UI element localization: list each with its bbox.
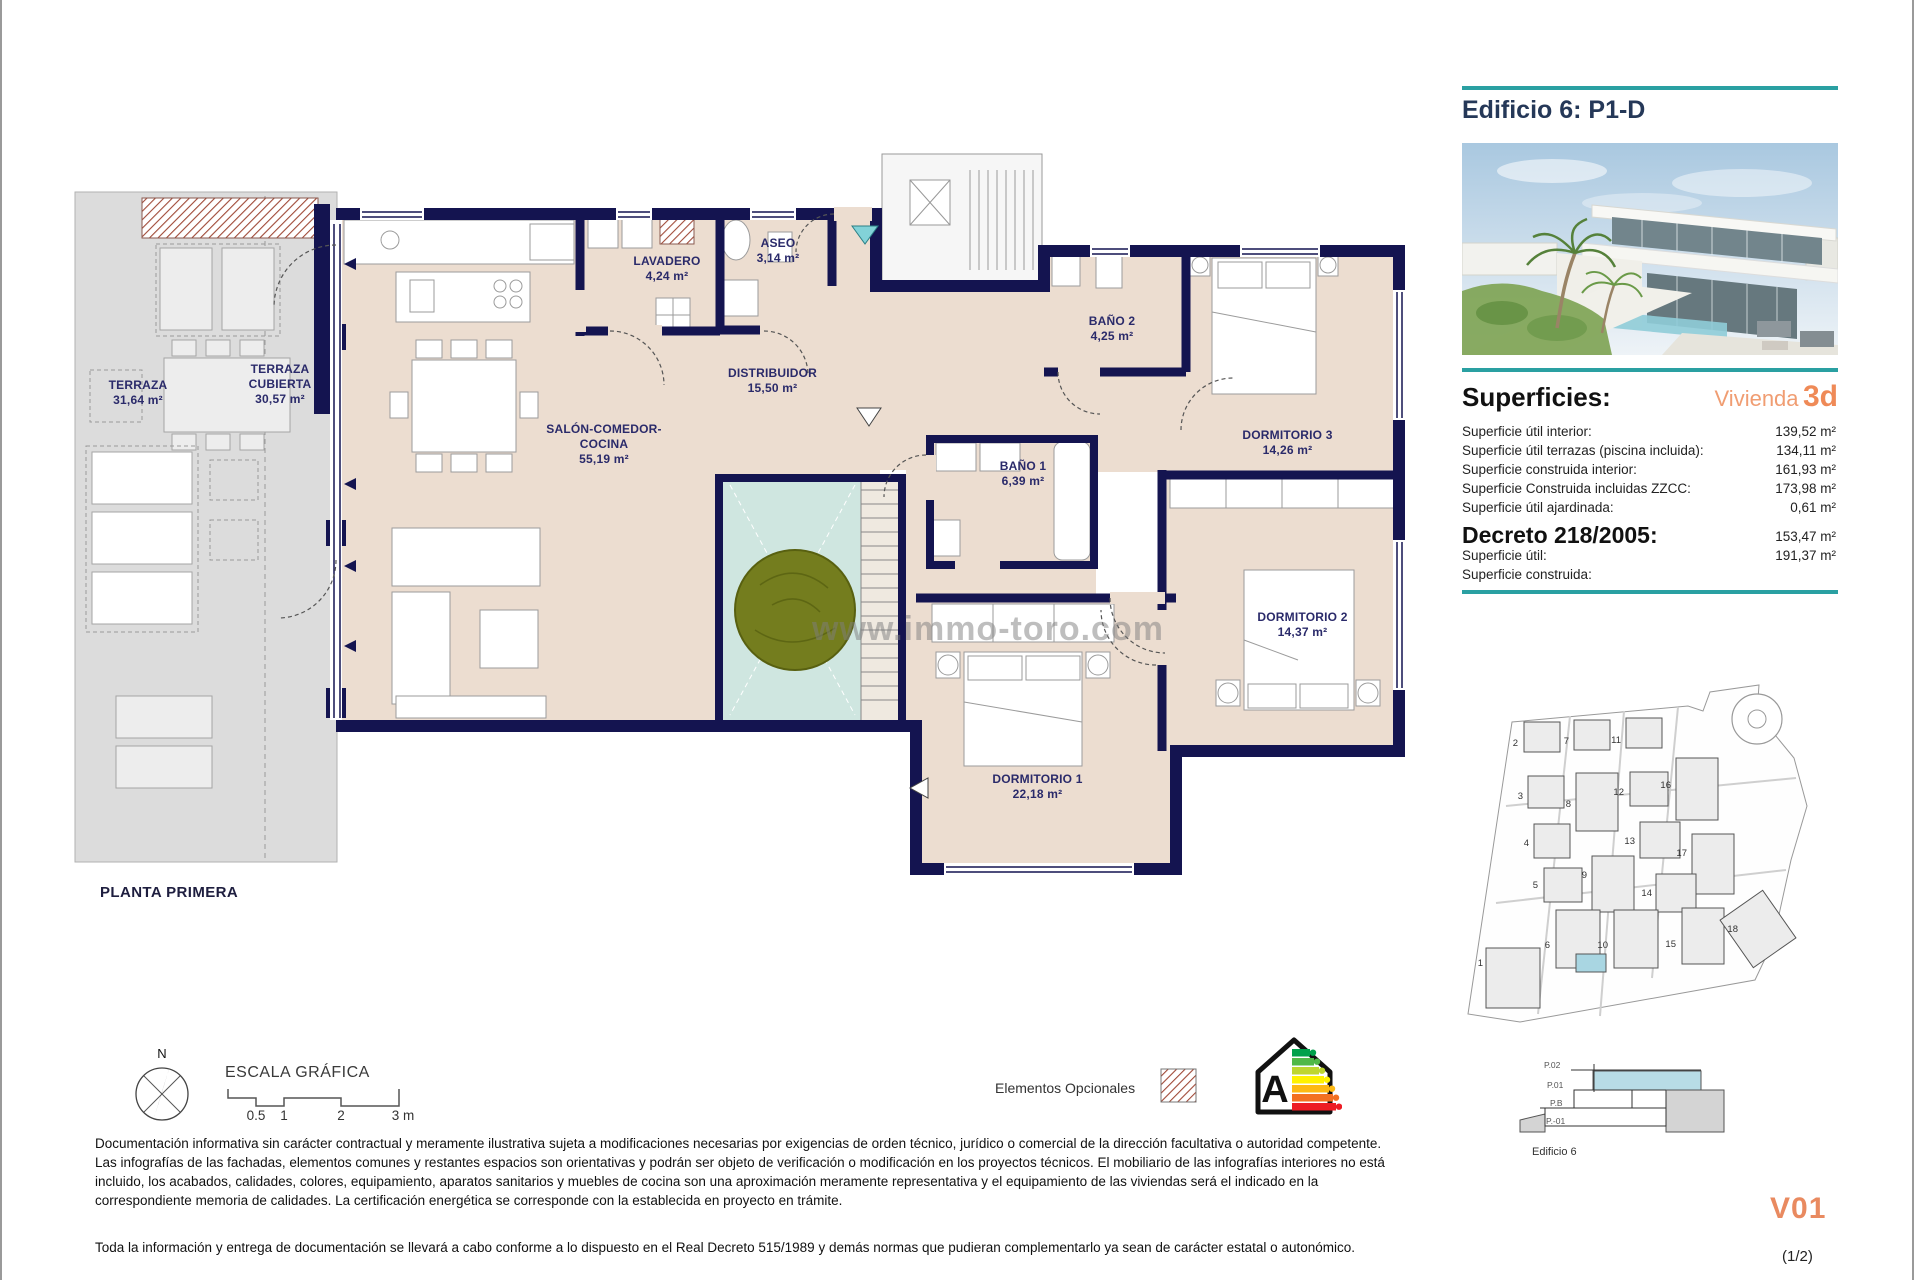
north-label: N — [157, 1046, 166, 1061]
svg-text:P.02: P.02 — [1544, 1060, 1561, 1070]
svg-text:2: 2 — [1513, 738, 1518, 749]
room-name: TERRAZA — [88, 378, 188, 393]
room-area: 55,19 m² — [540, 452, 668, 467]
room-area: 30,57 m² — [234, 392, 326, 407]
svg-text:18: 18 — [1727, 924, 1738, 935]
room-label-dormitorio3: DORMITORIO 3 14,26 m² — [1225, 428, 1350, 458]
room-name: DORMITORIO 3 — [1225, 428, 1350, 443]
optional-elements-label: Elementos Opcionales — [995, 1080, 1135, 1096]
elevation-caption: Edificio 6 — [1532, 1146, 1577, 1158]
superficie-label: Superficie útil: — [1462, 548, 1547, 563]
scale-tick: 0.5 — [247, 1108, 266, 1123]
superficies-bottom-rule — [1462, 590, 1838, 594]
disclaimer-paragraph-1: Documentación informativa sin carácter c… — [95, 1134, 1393, 1211]
svg-text:7: 7 — [1564, 736, 1569, 747]
superficie-label: Superficie útil ajardinada: — [1462, 500, 1614, 515]
room-label-distribuidor: DISTRIBUIDOR 15,50 m² — [705, 366, 840, 396]
scale-tick: 3 m — [392, 1108, 415, 1123]
optional-pergola-hatch — [142, 198, 318, 238]
page-number: (1/2) — [1782, 1248, 1813, 1265]
svg-text:6: 6 — [1545, 940, 1550, 951]
room-area: 31,64 m² — [88, 393, 188, 408]
scale-title: ESCALA GRÁFICA — [225, 1064, 370, 1082]
elevation-key-diagram: P.02 P.01 P.B P.-01 Edificio 6 — [1516, 1052, 1806, 1164]
svg-text:11: 11 — [1611, 735, 1621, 746]
room-name: DISTRIBUIDOR — [705, 366, 840, 381]
room-area: 4,25 m² — [1072, 329, 1152, 344]
room-area: 14,26 m² — [1225, 443, 1350, 458]
energy-letter: A — [1261, 1069, 1288, 1111]
common-lobby — [882, 154, 1042, 282]
room-label-lavadero: LAVADERO 4,24 m² — [612, 254, 722, 284]
vivienda-tag: Vivienda 3d — [1462, 380, 1838, 414]
terrace-zone — [75, 192, 337, 862]
compass-icon: N — [125, 1042, 200, 1127]
energy-rating-icon: A — [1246, 1028, 1342, 1124]
disclaimer-paragraph-2: Toda la información y entrega de documen… — [95, 1238, 1393, 1257]
room-label-bano1: BAÑO 1 6,39 m² — [982, 459, 1064, 489]
superficie-value: 134,11 m² — [1776, 443, 1836, 458]
room-name: TERRAZA CUBIERTA — [234, 362, 326, 392]
site-plan-map: 1 2 3 4 5 6 7 8 9 10 11 12 13 14 15 16 1… — [1456, 678, 1841, 1030]
decreto-title: Decreto 218/2005: — [1462, 522, 1658, 549]
superficie-value: 161,93 m² — [1775, 462, 1836, 477]
sheet-right-border — [1912, 0, 1914, 1280]
version-label: V01 — [1770, 1192, 1826, 1226]
optional-elements-swatch — [1160, 1068, 1198, 1104]
svg-text:14: 14 — [1641, 888, 1652, 899]
room-label-dormitorio1: DORMITORIO 1 22,18 m² — [975, 772, 1100, 802]
superficie-label: Superficie útil interior: — [1462, 424, 1592, 439]
room-label-terraza: TERRAZA 31,64 m² — [88, 378, 188, 408]
room-label-terraza-cubierta: TERRAZA CUBIERTA 30,57 m² — [234, 362, 326, 407]
room-name: SALÓN-COMEDOR-COCINA — [540, 422, 668, 452]
room-name: DORMITORIO 1 — [975, 772, 1100, 787]
superficie-value: 173,98 m² — [1775, 481, 1836, 496]
svg-text:P.-01: P.-01 — [1546, 1116, 1565, 1126]
watermark: www.immo-toro.com — [812, 610, 1164, 649]
sheet-left-border — [0, 0, 2, 1280]
superficie-label: Superficie útil terrazas (piscina inclui… — [1462, 443, 1704, 458]
elevation-level-labels: P.02 P.01 P.B P.-01 — [1544, 1060, 1565, 1126]
room-name: BAÑO 1 — [982, 459, 1064, 474]
superficie-value: 139,52 m² — [1775, 424, 1836, 439]
room-label-dormitorio2: DORMITORIO 2 14,37 m² — [1240, 610, 1365, 640]
svg-text:16: 16 — [1660, 780, 1671, 791]
room-name: BAÑO 2 — [1072, 314, 1152, 329]
highlighted-floor — [1593, 1071, 1701, 1090]
superficies-top-rule — [1462, 368, 1838, 372]
room-name: ASEO — [742, 236, 814, 251]
highlighted-unit — [1576, 954, 1606, 972]
room-name: DORMITORIO 2 — [1240, 610, 1365, 625]
svg-text:17: 17 — [1676, 848, 1687, 859]
room-area: 22,18 m² — [975, 787, 1100, 802]
building-render-image — [1462, 143, 1838, 355]
scale-tick: 2 — [337, 1108, 345, 1123]
svg-text:4: 4 — [1524, 838, 1529, 849]
svg-text:15: 15 — [1665, 939, 1676, 950]
superficie-label: Superficie Construida incluidas ZZCC: — [1462, 481, 1691, 496]
room-label-aseo: ASEO 3,14 m² — [742, 236, 814, 266]
plan-sheet: TERRAZA 31,64 m² TERRAZA CUBIERTA 30,57 … — [0, 0, 1920, 1280]
vivienda-code: 3d — [1803, 380, 1838, 413]
svg-text:1: 1 — [1478, 958, 1483, 969]
superficie-label: Superficie construida interior: — [1462, 462, 1637, 477]
svg-text:9: 9 — [1582, 870, 1587, 881]
svg-text:5: 5 — [1533, 880, 1538, 891]
svg-text:P.B: P.B — [1550, 1098, 1563, 1108]
svg-text:P.01: P.01 — [1547, 1080, 1564, 1090]
scale-tick: 1 — [280, 1108, 288, 1123]
page-title: Edificio 6: P1-D — [1462, 96, 1645, 125]
graphic-scale-bar: 0.5 1 2 3 m — [225, 1086, 425, 1124]
staircase — [861, 476, 902, 722]
svg-text:13: 13 — [1624, 836, 1635, 847]
room-name: LAVADERO — [612, 254, 722, 269]
vivienda-label: Vivienda — [1715, 386, 1799, 411]
floor-title: PLANTA PRIMERA — [100, 884, 238, 901]
room-label-salon: SALÓN-COMEDOR-COCINA 55,19 m² — [540, 422, 668, 467]
svg-text:12: 12 — [1613, 787, 1624, 798]
svg-text:3: 3 — [1518, 791, 1523, 802]
room-label-bano2: BAÑO 2 4,25 m² — [1072, 314, 1152, 344]
superficie-label: Superficie construida: — [1462, 567, 1592, 582]
superficie-value: 0,61 m² — [1790, 500, 1836, 515]
room-area: 3,14 m² — [742, 251, 814, 266]
room-area: 15,50 m² — [705, 381, 840, 396]
svg-text:8: 8 — [1566, 799, 1571, 810]
superficie-value: 153,47 m² — [1775, 529, 1836, 544]
svg-text:10: 10 — [1597, 940, 1608, 951]
room-area: 6,39 m² — [982, 474, 1064, 489]
room-area: 14,37 m² — [1240, 625, 1365, 640]
superficie-value: 191,37 m² — [1775, 548, 1836, 563]
room-area: 4,24 m² — [612, 269, 722, 284]
header-rule — [1462, 86, 1838, 90]
